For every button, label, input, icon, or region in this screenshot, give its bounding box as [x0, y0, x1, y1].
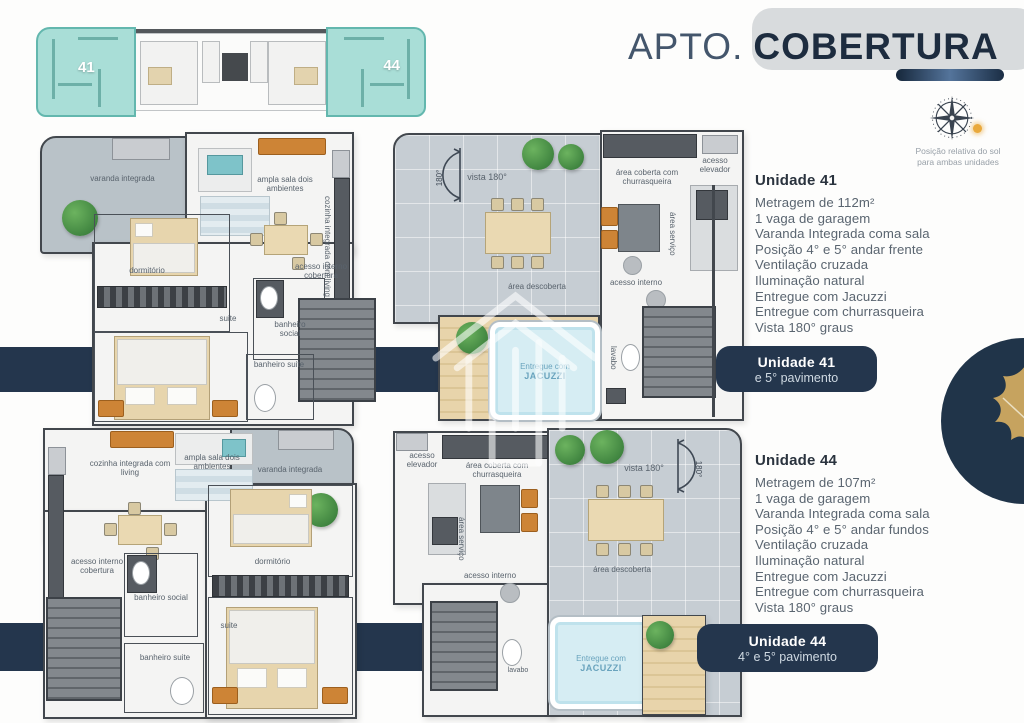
terrace-chair — [618, 485, 631, 498]
room-label-lavabo: lavabo — [496, 667, 540, 675]
room-label-cozinha: cozinha integrada com living — [85, 459, 175, 477]
spec-line: Entregue com Jacuzzi — [755, 569, 995, 585]
spec-line: Metragem de 107m² — [755, 475, 995, 491]
kitchen-counter — [334, 178, 350, 302]
toilet — [170, 677, 194, 705]
keyplan-bed — [294, 67, 318, 85]
balcony-window — [278, 430, 334, 450]
terrace-chair — [596, 543, 609, 556]
stool — [521, 513, 538, 532]
keyplan-room — [250, 41, 268, 83]
svg-text:180°: 180° — [435, 170, 444, 187]
spec-line: Ventilação cruzada — [755, 537, 995, 553]
room-label-dormitorio: dormitório — [102, 266, 192, 275]
nightstand — [212, 400, 238, 417]
room-label-banheiro-social: banheiro social — [134, 593, 188, 602]
spec-line: Ventilação cruzada — [755, 257, 995, 273]
sun-position-icon — [973, 124, 982, 133]
terrace-chair — [491, 198, 504, 211]
room-label-varanda: varanda integrada — [65, 174, 180, 183]
wardrobe — [97, 286, 227, 308]
bbq-counter — [603, 134, 697, 158]
lavabo-sink — [606, 388, 626, 404]
spec-line: Posição 4° e 5° andar fundos — [755, 522, 995, 538]
stool — [601, 207, 618, 226]
unit-44-banner: Unidade 44 4° e 5° pavimento — [697, 624, 878, 672]
sink — [132, 561, 150, 585]
plant — [558, 144, 584, 170]
room-label-area-servico: área serviço — [663, 202, 677, 266]
terrace-chair — [618, 543, 631, 556]
unit-41-banner-title: Unidade 41 — [716, 354, 877, 370]
spec-line: Entregue com Jacuzzi — [755, 289, 995, 305]
title-underline-bar — [896, 69, 1004, 81]
title-highlight: COBERTURA — [753, 26, 998, 68]
keyplan-unit-44-highlight: 44 — [326, 27, 426, 117]
spec-line: 1 vaga de garagem — [755, 491, 995, 507]
dining-chair — [104, 523, 117, 536]
bed-double — [230, 489, 312, 547]
room-label-area-descoberta: área descoberta — [586, 565, 658, 574]
building-keyplan: 41 44 — [36, 25, 426, 117]
spec-line: Entregue com churrasqueira — [755, 304, 995, 320]
terrace-chair — [511, 198, 524, 211]
fridge — [332, 150, 350, 178]
room-label-dormitorio: dormitório — [225, 557, 320, 566]
room-label-area-servico: área serviço — [452, 509, 466, 569]
spec-line: 1 vaga de garagem — [755, 211, 995, 227]
terrace-table — [588, 499, 664, 541]
balcony-window — [112, 138, 170, 160]
jacuzzi-label-line2: JACUZZI — [580, 663, 622, 673]
stairs — [430, 601, 498, 691]
nightstand — [98, 400, 124, 417]
toilet — [254, 384, 276, 412]
nightstand — [212, 687, 238, 704]
dining-chair — [250, 233, 263, 246]
dining-table — [264, 225, 308, 255]
terrace-chair — [640, 485, 653, 498]
keyplan-bed — [148, 67, 172, 85]
keyplan-elevator-core — [222, 53, 248, 81]
plant — [646, 621, 674, 649]
dining-table — [118, 515, 162, 545]
dining-chair — [128, 502, 141, 515]
plant — [62, 200, 98, 236]
fridge — [48, 447, 66, 475]
stairs — [642, 306, 716, 398]
terrace-chair — [531, 198, 544, 211]
title-prefix: APTO. — [628, 26, 743, 68]
keyplan-room — [202, 41, 220, 83]
floorplan-unit44-lower: varanda integrada cozinha integrada com … — [40, 425, 375, 717]
room-label-suite: suite — [210, 621, 248, 630]
wardrobe — [212, 575, 349, 597]
spec-line: Vista 180° graus — [755, 320, 995, 336]
room-label-suite: suite — [208, 314, 248, 323]
keyplan-unit-41-number: 41 — [78, 59, 95, 76]
jacuzzi-label-line1: Entregue com — [576, 654, 626, 663]
spec-line: Posição 4° e 5° andar frente — [755, 242, 995, 258]
unit-44-info: Unidade 44 Metragem de 107m² 1 vaga de g… — [755, 452, 995, 615]
unit-41-heading: Unidade 41 — [755, 172, 995, 189]
view-arc-180-icon: 180° — [430, 146, 464, 204]
kitchen-island — [618, 204, 660, 252]
spec-line: Iluminação natural — [755, 273, 995, 289]
stairs — [46, 597, 122, 701]
room-label-banheiro-suite: banheiro suite — [136, 653, 194, 662]
spec-line: Vista 180° graus — [755, 600, 995, 616]
ottoman — [623, 256, 642, 275]
dining-chair — [164, 523, 177, 536]
builder-house-logo-watermark — [428, 282, 603, 477]
room-label-cozinha: cozinha integrada com living — [316, 192, 332, 300]
room-label-acesso-cobertura: acesso interno cobertura — [293, 262, 349, 280]
unit-44-banner-subtitle: 4° e 5° pavimento — [697, 650, 878, 664]
kitchen-island — [480, 485, 520, 533]
elevator-shaft — [702, 135, 738, 154]
room-label-acesso-elevador: acesso elevador — [692, 156, 738, 174]
kitchen-counter — [48, 475, 64, 599]
stool — [601, 230, 618, 249]
sink — [260, 286, 278, 310]
room-label-vista: vista 180° — [620, 463, 668, 473]
brochure-page: { "header": { "title_prefix": "APTO.", "… — [0, 0, 1024, 723]
floorplan-unit41-lower: varanda integrada ampla sala dois ambien… — [40, 130, 375, 422]
nightstand — [322, 687, 348, 704]
elevator-shaft — [396, 433, 428, 451]
tv-rack — [258, 138, 326, 155]
jacuzzi-tub: Entregue com JACUZZI — [550, 617, 652, 709]
room-label-sala: ampla sala dois ambientes — [182, 453, 242, 471]
room-label-acesso-interno: acesso interno — [458, 571, 522, 580]
keyplan-unit-44-number: 44 — [383, 57, 400, 74]
toilet — [502, 639, 522, 666]
room-label-acesso-interno: acesso interno — [604, 278, 668, 287]
spec-line: Metragem de 112m² — [755, 195, 995, 211]
spec-line: Entregue com churrasqueira — [755, 584, 995, 600]
page-title: APTO. COBERTURA — [628, 26, 999, 68]
room-label-lavabo: lavabo — [604, 330, 618, 386]
pouf — [500, 583, 520, 603]
compass-rose-icon — [926, 92, 978, 144]
tv-rack — [110, 431, 174, 448]
toilet — [621, 344, 640, 371]
terrace-chair — [491, 256, 504, 269]
keyplan-unit-41-highlight: 41 — [36, 27, 136, 117]
room-label-vista: vista 180° — [464, 172, 510, 182]
terrace-chair — [640, 543, 653, 556]
terrace-table — [485, 212, 551, 254]
room-label-area-coberta: área coberta com churrasqueira — [602, 168, 692, 186]
room-label-sala: ampla sala dois ambientes — [245, 175, 325, 193]
compass-caption: Posição relativa do sol para ambas unida… — [912, 146, 1004, 167]
spec-line: Varanda Integrada coma sala — [755, 226, 995, 242]
sofa — [198, 148, 252, 192]
spec-line: Varanda Integrada coma sala — [755, 506, 995, 522]
svg-text:180°: 180° — [694, 461, 703, 478]
unit-41-info: Unidade 41 Metragem de 112m² 1 vaga de g… — [755, 172, 995, 335]
room-label-banheiro-suite: banheiro suite — [252, 360, 306, 369]
terrace-chair — [531, 256, 544, 269]
unit-41-banner: Unidade 41 e 5° pavimento — [716, 346, 877, 392]
room-label-varanda: varanda integrada — [240, 465, 340, 474]
bed-suite — [114, 336, 210, 420]
terrace-chair — [596, 485, 609, 498]
terrace-chair — [511, 256, 524, 269]
unit-41-banner-subtitle: e 5° pavimento — [716, 371, 877, 385]
spec-line: Iluminação natural — [755, 553, 995, 569]
view-arc-180-icon: 180° — [674, 437, 708, 495]
dining-chair — [274, 212, 287, 225]
party-wall — [712, 185, 715, 417]
unit-44-banner-title: Unidade 44 — [697, 633, 878, 649]
room-label-banheiro-social: banheiro social — [264, 320, 316, 338]
room-label-acesso-cobertura: acesso interno cobertura — [68, 557, 126, 575]
stool — [521, 489, 538, 508]
plant — [522, 138, 554, 170]
